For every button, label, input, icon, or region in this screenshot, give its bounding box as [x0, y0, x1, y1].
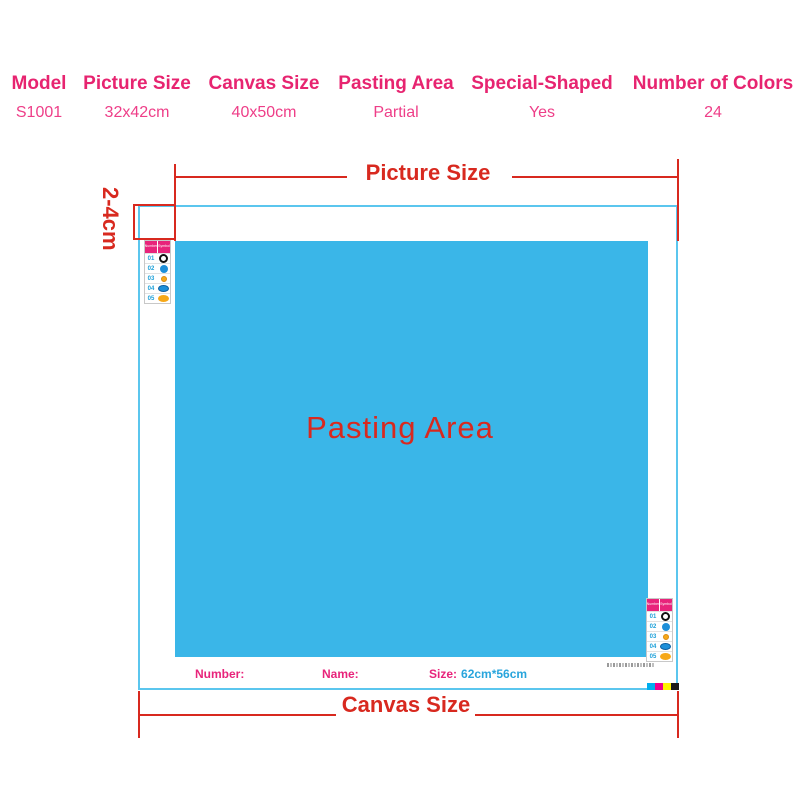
- spec-value-special-shaped: Yes: [529, 104, 555, 122]
- spec-value-pasting-area: Partial: [373, 104, 418, 122]
- footer-name-label: Name:: [322, 667, 359, 681]
- legend-number: 05: [647, 654, 659, 660]
- spec-label-pasting-area: Pasting Area: [338, 73, 453, 95]
- legend-number: 05: [145, 296, 157, 302]
- cmyk-cyan-swatch: [647, 683, 655, 690]
- spec-value-model: S1001: [16, 104, 62, 122]
- drill-shape-yellow-circle-icon: [161, 276, 167, 282]
- drill-shape-blue-oval-icon: [660, 643, 671, 650]
- margin-bracket-top-tick: [133, 204, 175, 206]
- margin-size-label: 2-4cm: [97, 187, 123, 251]
- footer-size-line: Size:62cm*56cm: [429, 667, 527, 681]
- cmyk-magenta-swatch: [655, 683, 663, 690]
- cmyk-calibration-bar: [647, 683, 679, 690]
- legend-row: 03: [647, 631, 672, 641]
- legend-header: Number Symbol: [145, 241, 170, 253]
- cmyk-black-swatch: [671, 683, 679, 690]
- drill-shape-black-donut-icon: [159, 254, 168, 263]
- cmyk-yellow-swatch: [663, 683, 671, 690]
- legend-row: 04: [647, 641, 672, 651]
- canvas-size-dimension-line-left: [139, 714, 336, 716]
- spec-value-number-of-colors: 24: [704, 104, 722, 122]
- legend-number: 01: [647, 614, 659, 620]
- legend-row: 02: [647, 621, 672, 631]
- drill-shape-blue-circle-icon: [160, 265, 168, 273]
- spec-value-picture-size: 32x42cm: [105, 104, 170, 122]
- picture-size-label: Picture Size: [366, 160, 491, 186]
- drill-shape-black-donut-icon: [661, 612, 670, 621]
- spec-label-special-shaped: Special-Shaped: [471, 73, 613, 95]
- spec-value-canvas-size: 40x50cm: [232, 104, 297, 122]
- pasting-area-label: Pasting Area: [306, 410, 494, 446]
- spec-label-number-of-colors: Number of Colors: [633, 73, 793, 95]
- footer-number-label: Number:: [195, 667, 244, 681]
- legend-row: 04: [145, 283, 170, 293]
- legend-number: 04: [145, 286, 157, 292]
- picture-size-bracket-right-line: [677, 159, 679, 241]
- legend-header-number: Number: [647, 599, 659, 611]
- legend-row: 01: [145, 253, 170, 263]
- legend-row: 05: [145, 293, 170, 303]
- canvas-size-dimension-line-right: [475, 714, 679, 716]
- margin-bracket-vertical-line: [133, 204, 135, 240]
- picture-size-dimension-line-right: [512, 176, 679, 178]
- legend-number: 04: [647, 644, 659, 650]
- legend-number: 01: [145, 256, 157, 262]
- footer-size-value: 62cm*56cm: [461, 667, 527, 681]
- legend-row: 05: [647, 651, 672, 661]
- drill-shape-orange-oval-icon: [660, 653, 671, 660]
- legend-row: 03: [145, 273, 170, 283]
- legend-header-symbol: Symbol: [660, 599, 672, 611]
- drill-shape-blue-circle-icon: [662, 623, 670, 631]
- drill-symbol-legend-top-left: Number Symbol 01 02 03 04 05: [144, 240, 171, 304]
- legend-header: Number Symbol: [647, 599, 672, 611]
- drill-shape-orange-oval-icon: [158, 295, 169, 302]
- legend-row: 02: [145, 263, 170, 273]
- spec-label-canvas-size: Canvas Size: [209, 73, 320, 95]
- legend-number: 03: [647, 634, 659, 640]
- legend-number: 03: [145, 276, 157, 282]
- legend-number: 02: [647, 624, 659, 630]
- picture-size-dimension-line-left: [175, 176, 347, 178]
- legend-number: 02: [145, 266, 157, 272]
- product-spec-diagram: Model Picture Size Canvas Size Pasting A…: [0, 0, 800, 800]
- legend-row: 01: [647, 611, 672, 621]
- legend-header-symbol: Symbol: [158, 241, 170, 253]
- legend-header-number: Number: [145, 241, 157, 253]
- footer-size-label: Size:: [429, 667, 457, 681]
- spec-label-picture-size: Picture Size: [83, 73, 191, 95]
- drill-symbol-legend-bottom-right: Number Symbol 01 02 03 04 05: [646, 598, 673, 662]
- pasting-area-rect: [175, 241, 648, 657]
- spec-label-model: Model: [12, 73, 67, 95]
- canvas-size-label: Canvas Size: [342, 692, 470, 718]
- fine-print-text: [607, 663, 655, 667]
- drill-shape-yellow-circle-icon: [663, 634, 669, 640]
- drill-shape-blue-oval-icon: [158, 285, 169, 292]
